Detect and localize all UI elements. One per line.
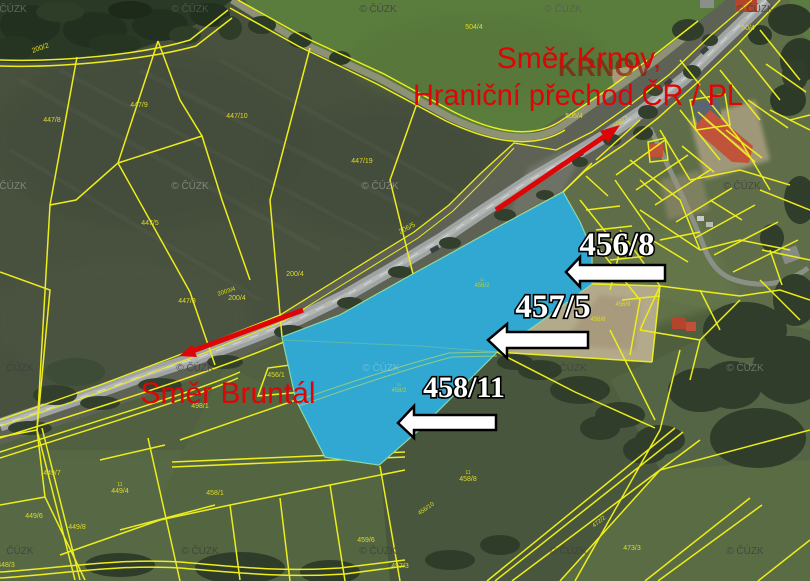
- svg-text:© ČÚZK: © ČÚZK: [726, 544, 764, 557]
- svg-text:© ČÚZK: © ČÚZK: [359, 544, 397, 557]
- svg-text:© ČÚZK: © ČÚZK: [736, 2, 774, 15]
- svg-text:447/19: 447/19: [351, 158, 373, 165]
- svg-text:200/4: 200/4: [228, 295, 246, 302]
- svg-text:ČÚZK: ČÚZK: [6, 361, 34, 374]
- svg-text:447/5: 447/5: [141, 220, 159, 227]
- svg-text:© ČÚZK: © ČÚZK: [723, 179, 761, 192]
- svg-text:447/8: 447/8: [43, 117, 61, 124]
- svg-text:© ČÚZK: © ČÚZK: [726, 361, 764, 374]
- svg-text:Směr Krnov,: Směr Krnov,: [497, 42, 662, 75]
- svg-text:© ČÚZK: © ČÚZK: [549, 544, 587, 557]
- svg-text:© ČÚZK: © ČÚZK: [544, 2, 582, 15]
- svg-text:Hraniční přechod ČR / PL: Hraniční přechod ČR / PL: [413, 78, 743, 112]
- svg-text:11: 11: [117, 482, 122, 488]
- svg-text:473/3: 473/3: [623, 545, 641, 552]
- svg-text:458/11: 458/11: [423, 371, 505, 404]
- svg-text:11: 11: [465, 470, 470, 476]
- svg-text:© ČÚZK: © ČÚZK: [362, 361, 400, 374]
- svg-text:Směr Bruntál: Směr Bruntál: [140, 377, 315, 410]
- svg-text:456/8: 456/8: [579, 227, 654, 263]
- svg-text:457/5: 457/5: [515, 289, 590, 325]
- svg-text:© ČÚZK: © ČÚZK: [359, 2, 397, 15]
- svg-text:447/10: 447/10: [226, 113, 248, 120]
- svg-text:449/7: 449/7: [43, 470, 61, 477]
- svg-text:458/8: 458/8: [459, 476, 477, 483]
- svg-text:© ČÚZK: © ČÚZK: [361, 179, 399, 192]
- svg-text:50/4: 50/4: [741, 25, 755, 32]
- svg-text:457/3: 457/3: [391, 563, 409, 570]
- svg-text:458/1: 458/1: [206, 490, 224, 497]
- svg-text:506/4: 506/4: [565, 113, 583, 120]
- svg-text:© ČÚZK: © ČÚZK: [171, 2, 209, 15]
- svg-text:ČÚZK: ČÚZK: [6, 544, 34, 557]
- svg-text:456/8: 456/8: [590, 317, 606, 323]
- svg-text:448/3: 448/3: [0, 562, 15, 569]
- svg-text:© ČÚZK: © ČÚZK: [176, 361, 214, 374]
- svg-text:456/2: 456/2: [474, 283, 490, 289]
- svg-text:ČÚZK: ČÚZK: [0, 2, 27, 15]
- svg-text:200/4: 200/4: [286, 271, 304, 278]
- svg-text:459/6: 459/6: [357, 537, 375, 544]
- svg-text:449/4: 449/4: [111, 488, 129, 495]
- svg-text:ČÚZK: ČÚZK: [0, 179, 27, 192]
- svg-text:456/9: 456/9: [615, 302, 631, 308]
- svg-text:© ČÚZK: © ČÚZK: [181, 544, 219, 557]
- svg-text:447/9: 447/9: [130, 102, 148, 109]
- svg-text:458/2: 458/2: [391, 388, 407, 394]
- svg-text:© ČÚZK: © ČÚZK: [171, 179, 209, 192]
- svg-text:© ČÚZK: © ČÚZK: [549, 361, 587, 374]
- svg-text:447/8: 447/8: [178, 298, 196, 305]
- svg-text:504/4: 504/4: [465, 24, 483, 31]
- svg-text:449/8: 449/8: [68, 524, 86, 531]
- svg-text:449/6: 449/6: [25, 513, 43, 520]
